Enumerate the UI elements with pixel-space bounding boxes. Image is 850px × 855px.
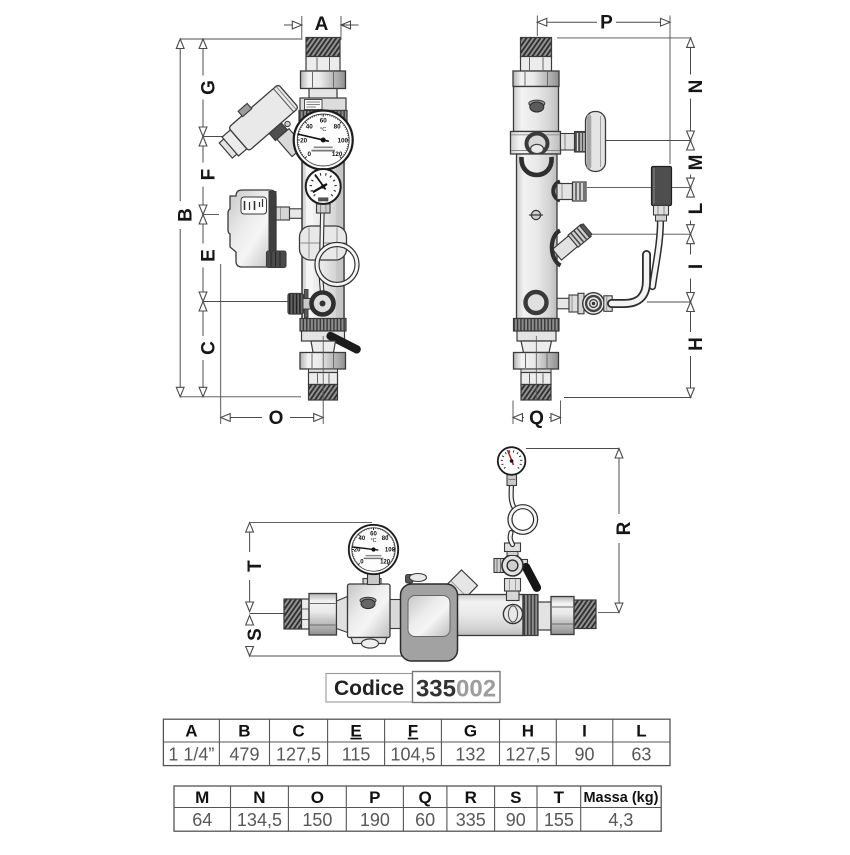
svg-text:N: N	[253, 788, 265, 807]
svg-text:0: 0	[308, 151, 312, 158]
svg-text:N: N	[686, 80, 707, 94]
svg-text:Q: Q	[419, 788, 432, 807]
svg-text:120: 120	[380, 559, 391, 565]
svg-text:127,5: 127,5	[505, 745, 550, 765]
svg-text:127,5: 127,5	[276, 745, 321, 765]
svg-text:134,5: 134,5	[237, 810, 282, 830]
svg-text:S: S	[510, 788, 521, 807]
svg-text:E: E	[350, 722, 361, 741]
svg-text:335002: 335002	[416, 676, 496, 703]
svg-text:B: B	[238, 722, 250, 741]
svg-text:40: 40	[306, 123, 314, 130]
svg-text:E: E	[198, 249, 219, 262]
svg-text:G: G	[464, 722, 477, 741]
svg-text:P: P	[600, 13, 613, 34]
svg-text:R: R	[465, 788, 477, 807]
svg-text:C: C	[198, 341, 219, 355]
svg-text:T: T	[554, 788, 565, 807]
svg-text:Massa (kg): Massa (kg)	[583, 790, 658, 806]
svg-text:80: 80	[382, 536, 389, 542]
svg-text:P: P	[369, 788, 380, 807]
svg-text:B: B	[175, 208, 196, 222]
svg-text:F: F	[408, 722, 418, 741]
svg-text:1 1/4”: 1 1/4”	[168, 745, 214, 765]
svg-text:T: T	[245, 560, 266, 572]
svg-text:R: R	[614, 521, 635, 535]
svg-text:479: 479	[229, 745, 259, 765]
svg-text:90: 90	[575, 745, 595, 765]
svg-text:100: 100	[338, 137, 349, 144]
svg-text:100: 100	[385, 548, 396, 554]
svg-text:60: 60	[370, 531, 377, 537]
svg-text:63: 63	[631, 745, 651, 765]
svg-text:S: S	[245, 628, 266, 641]
svg-text:150: 150	[302, 810, 332, 830]
svg-text:I: I	[582, 722, 587, 741]
svg-text:C: C	[292, 722, 304, 741]
svg-text:A: A	[315, 14, 329, 35]
svg-text:90: 90	[506, 810, 526, 830]
svg-text:64: 64	[192, 810, 212, 830]
svg-text:4,3: 4,3	[608, 810, 633, 830]
svg-text:80: 80	[334, 123, 342, 130]
svg-text:Codice: Codice	[334, 677, 404, 700]
svg-text:F: F	[198, 169, 219, 181]
svg-text:H: H	[522, 722, 534, 741]
svg-text:60: 60	[415, 810, 435, 830]
svg-text:°C: °C	[320, 127, 326, 133]
svg-text:I: I	[686, 264, 707, 269]
svg-text:L: L	[686, 202, 707, 214]
svg-text:L: L	[636, 722, 646, 741]
svg-text:A: A	[185, 722, 197, 741]
svg-text:132: 132	[455, 745, 485, 765]
svg-text:40: 40	[359, 536, 366, 542]
svg-text:335: 335	[456, 810, 486, 830]
svg-text:°C: °C	[370, 538, 376, 544]
svg-text:155: 155	[544, 810, 574, 830]
svg-text:60: 60	[320, 118, 328, 125]
svg-text:20: 20	[300, 137, 308, 144]
svg-text:G: G	[198, 80, 219, 95]
svg-text:104,5: 104,5	[390, 745, 435, 765]
svg-text:120: 120	[332, 151, 343, 158]
svg-text:115: 115	[342, 745, 371, 765]
svg-text:O: O	[269, 408, 284, 429]
svg-text:H: H	[686, 337, 707, 351]
svg-text:Q: Q	[529, 408, 544, 429]
svg-text:M: M	[195, 788, 209, 807]
svg-text:20: 20	[354, 548, 361, 554]
svg-text:M: M	[686, 155, 707, 171]
svg-text:O: O	[311, 788, 324, 807]
svg-text:190: 190	[360, 810, 390, 830]
